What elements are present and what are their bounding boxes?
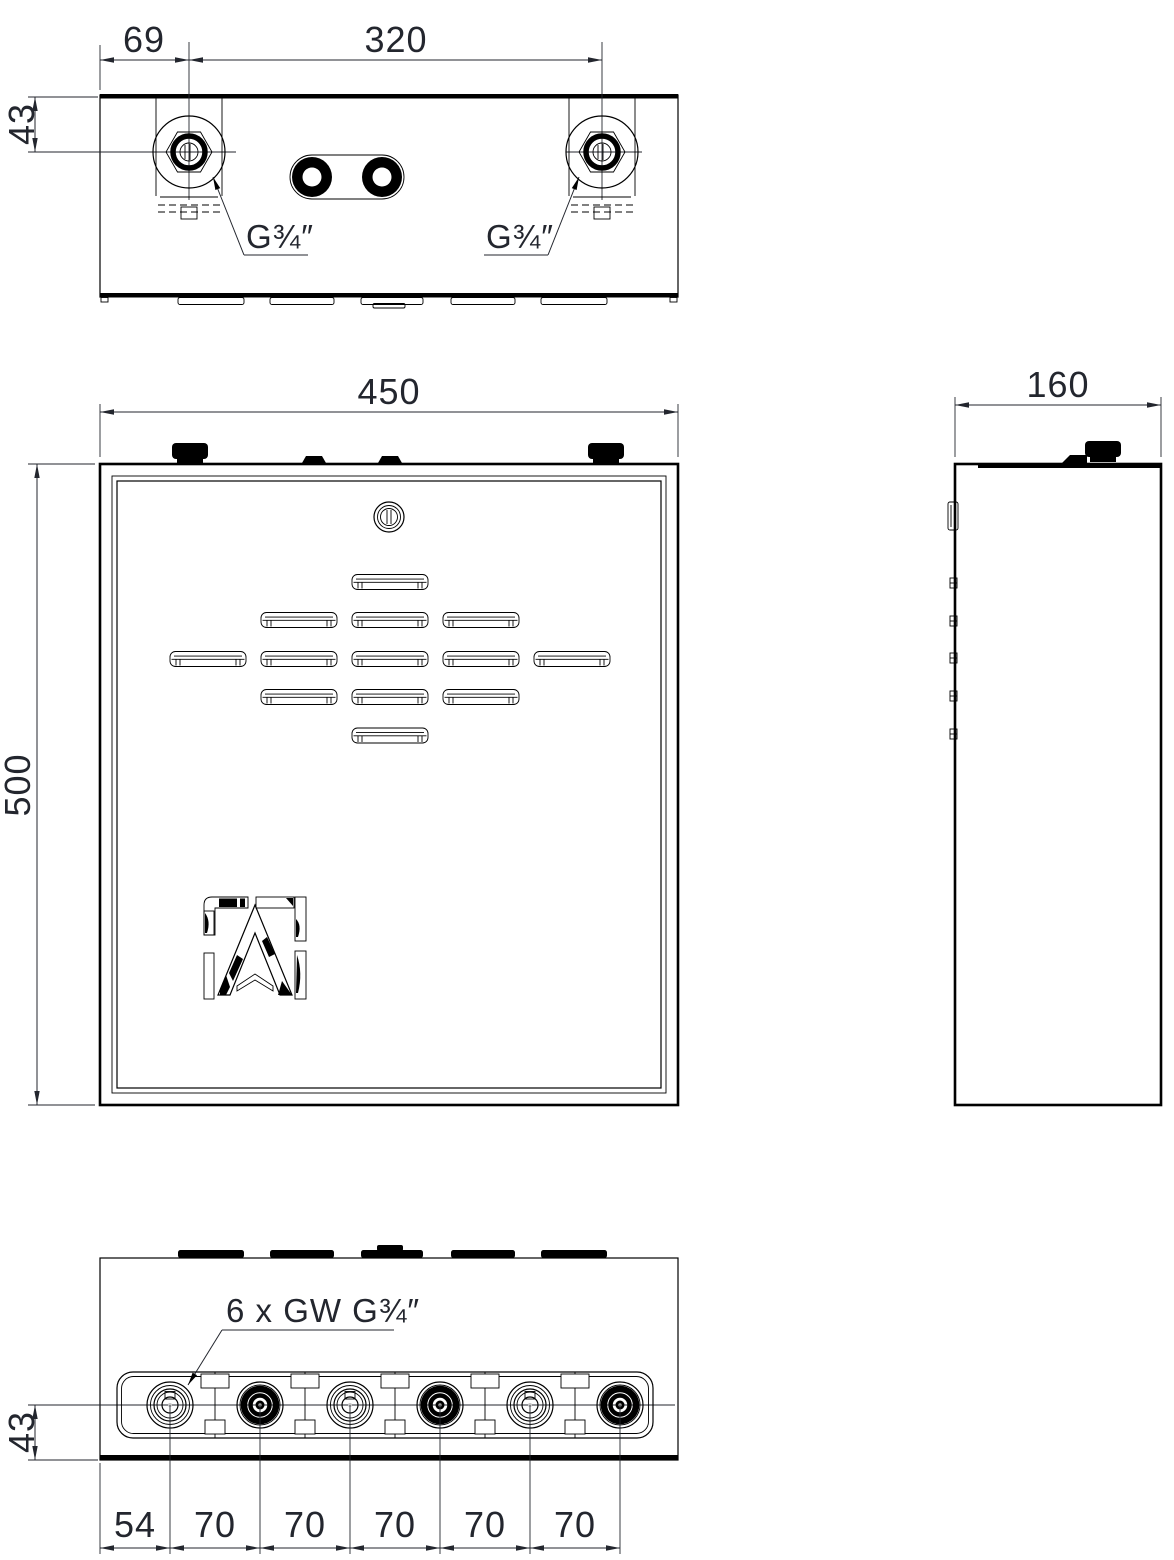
vent-slot — [352, 575, 428, 590]
vent-slot — [261, 690, 337, 705]
bottom-view: 6 x GW G¾″ 43 54 70 70 — [1, 1245, 678, 1554]
vent-slot — [443, 690, 519, 705]
vent-slot — [534, 652, 610, 667]
side-knob — [1085, 441, 1121, 462]
bottom-flange-tabs — [178, 1245, 607, 1258]
cabinet-frame — [100, 464, 678, 1105]
drawing-sheet: G¾″ G¾″ 69 320 43 — [0, 0, 1174, 1560]
dim-seg-1: 70 — [194, 1504, 236, 1545]
port-label-right-group: G¾″ — [484, 177, 579, 255]
vent-slot — [443, 652, 519, 667]
top-view: G¾″ G¾″ 69 320 43 — [1, 19, 678, 308]
front-view: 450 500 — [0, 371, 678, 1105]
dim-height-value: 500 — [0, 753, 38, 816]
vent-slot — [443, 613, 519, 628]
port-label-right: G¾″ — [486, 218, 554, 255]
dim-depth-value: 160 — [1026, 364, 1089, 405]
dim-valve-depth: 43 — [1, 1405, 98, 1460]
dim-seg-2: 70 — [284, 1504, 326, 1545]
vent-slot — [352, 728, 428, 743]
latch-tab-left — [302, 456, 326, 463]
connections-label-group: 6 x GW G¾″ — [188, 1292, 420, 1385]
wall-knob-left — [172, 443, 208, 464]
dim-width-value: 450 — [357, 371, 420, 412]
side-body — [955, 464, 1161, 1105]
vent-slot — [352, 690, 428, 705]
dim-valve-depth-value: 43 — [1, 1411, 42, 1453]
vent-louvers — [170, 575, 610, 744]
vent-slot — [170, 652, 246, 667]
cabinet-door — [117, 481, 661, 1088]
vent-slot — [352, 652, 428, 667]
dim-depth: 160 — [955, 364, 1161, 457]
brand-logo — [204, 897, 306, 999]
vent-slot — [261, 652, 337, 667]
dim-seg-3: 70 — [374, 1504, 416, 1545]
dim-seg-4: 70 — [464, 1504, 506, 1545]
dim-port-spacing-value: 320 — [364, 19, 427, 60]
dim-seg-5: 70 — [554, 1504, 596, 1545]
dim-valve-pitch: 54 70 70 70 70 70 — [100, 1405, 620, 1554]
dim-port-spacing: 320 — [189, 19, 602, 60]
dim-height: 500 — [0, 464, 95, 1105]
vent-slot — [352, 613, 428, 628]
dim-port-offset: 69 — [100, 19, 189, 90]
vent-slot — [261, 613, 337, 628]
side-view: 160 — [948, 364, 1161, 1105]
port-label-left: G¾″ — [246, 218, 314, 255]
side-latch-tab — [1062, 455, 1087, 463]
technical-drawing-canvas: G¾″ G¾″ 69 320 43 — [0, 0, 1174, 1560]
cable-grommets — [290, 155, 404, 199]
top-view-flange-tabs — [101, 298, 677, 309]
top-view-front-edge — [100, 293, 678, 298]
connections-label: 6 x GW G¾″ — [226, 1292, 420, 1329]
dim-port-depth: 43 — [1, 97, 98, 152]
wall-knob-right — [588, 443, 624, 464]
dim-port-depth-value: 43 — [1, 103, 42, 145]
side-hinge-clip — [948, 502, 958, 530]
top-view-back-edge — [100, 94, 678, 99]
latch-tab-right — [378, 456, 402, 463]
door-lock — [374, 502, 404, 532]
bottom-front-edge — [100, 1455, 678, 1460]
dim-seg-0: 54 — [114, 1504, 156, 1545]
dim-port-offset-value: 69 — [123, 19, 165, 60]
